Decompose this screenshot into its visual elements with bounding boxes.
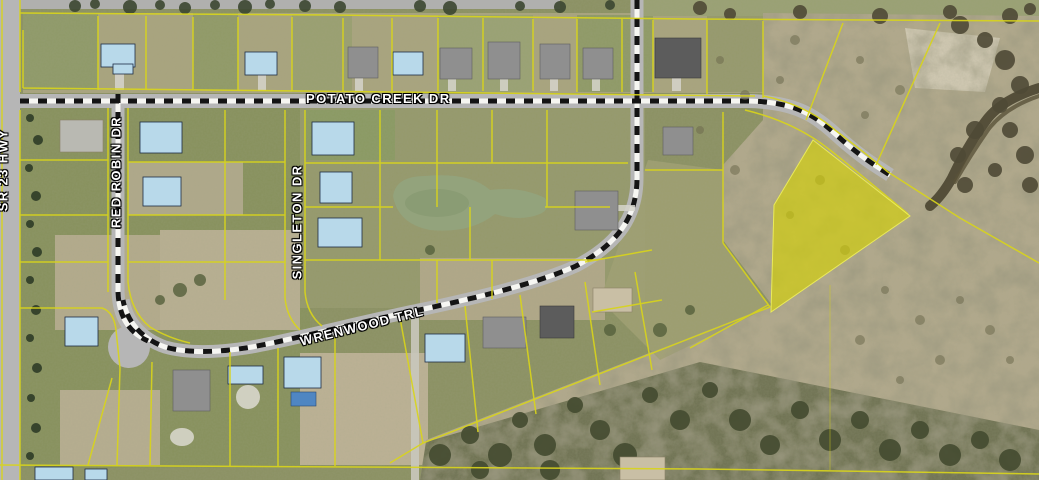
street-label-potato-creek-dr: POTATO CREEK DR (306, 91, 451, 106)
aerial-map[interactable]: POTATO CREEK DR RED ROBIN DR SINGLETON D… (0, 0, 1039, 480)
street-label-singleton-dr: SINGLETON DR (290, 165, 305, 280)
road-sr23 (0, 0, 20, 480)
aerial-map-canvas (0, 0, 1039, 480)
road-top-edge (20, 0, 560, 9)
street-label-red-robin-dr: RED ROBIN DR (109, 116, 124, 228)
pool (291, 392, 316, 406)
street-label-sr-23-hwy: SR 23 HWY (0, 129, 11, 212)
